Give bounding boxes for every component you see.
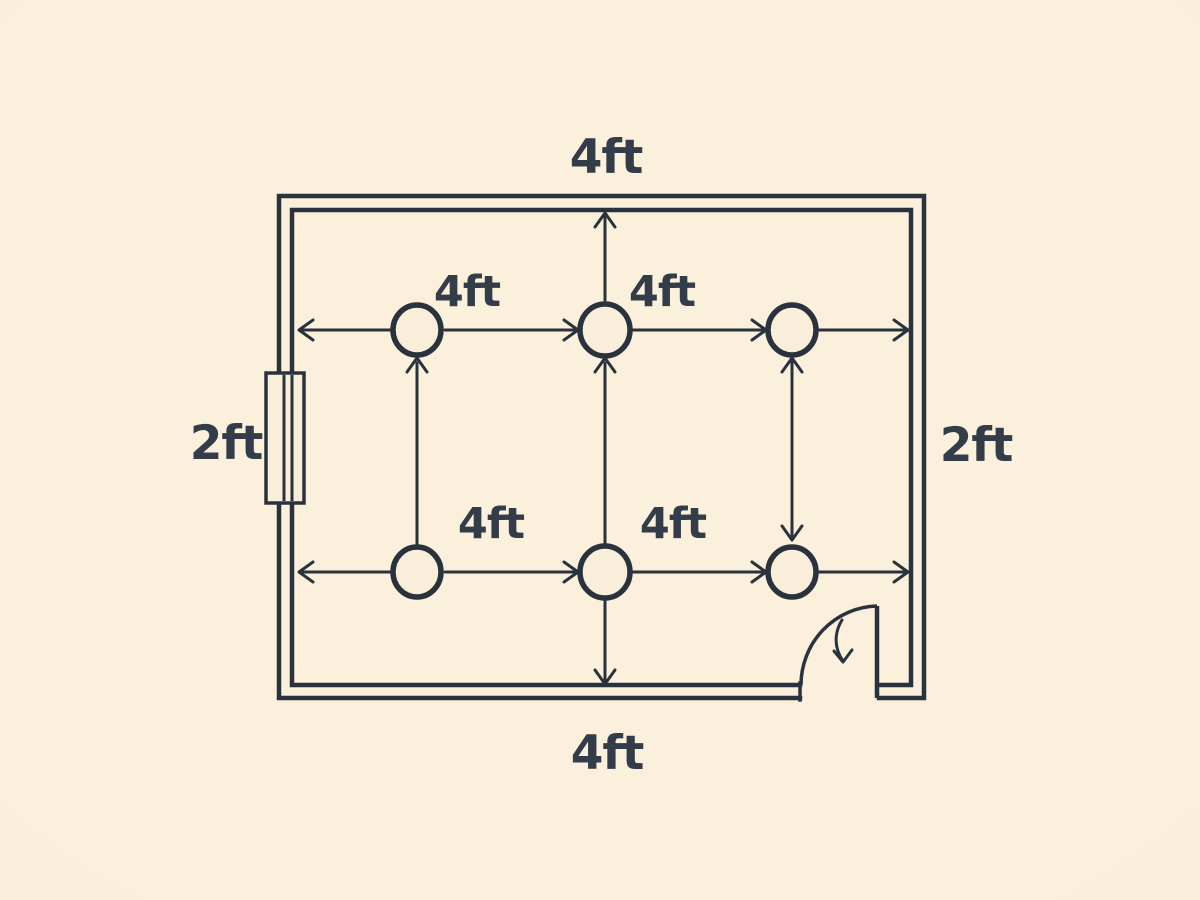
arrow-row2-fixture4-to-fixture5: [445, 562, 578, 582]
arrow-col1-between-rows: [407, 358, 427, 546]
fixture-circle: [768, 547, 816, 597]
floor-plan-diagram: 4ft 4ft 2ft 2ft 4ft 4ft 4ft 4ft: [0, 0, 1200, 900]
spacing-label-row1-gap2: 4ft: [629, 267, 696, 317]
dimension-label-right: 2ft: [940, 418, 1013, 473]
dimension-label-top: 4ft: [570, 130, 643, 185]
window-symbol: [266, 373, 304, 503]
spacing-label-row2-gap1: 4ft: [458, 499, 525, 549]
room-wall-outer: [279, 196, 924, 698]
arrow-col2-fixture5-to-bottom-wall: [595, 600, 615, 684]
fixture-circle: [393, 547, 441, 597]
dimension-label-left: 2ft: [190, 416, 263, 471]
spacing-label-row2-gap2: 4ft: [640, 499, 707, 549]
arrow-row1-fixture1-to-fixture2: [445, 320, 578, 340]
door-swing-direction-arrow-icon: [834, 620, 852, 662]
arrow-row1-fixture3-to-wall: [819, 320, 908, 340]
arrow-row1-fixture2-to-fixture3: [633, 320, 766, 340]
room-wall-inner: [292, 210, 911, 685]
spacing-arrows: [299, 213, 908, 684]
arrow-row2-fixture6-to-wall: [819, 562, 908, 582]
door-symbol: [801, 606, 877, 698]
arrow-row2-wall-to-fixture4: [299, 562, 391, 582]
arrow-col2-fixture2-to-top-wall: [595, 213, 615, 300]
arrow-row1-wall-to-fixture1: [299, 320, 391, 340]
door-swing-arc: [801, 606, 877, 685]
arrow-col2-between-rows: [595, 358, 615, 546]
dimension-label-bottom: 4ft: [571, 726, 644, 781]
arrow-col3-between-rows: [782, 358, 802, 540]
spacing-label-row1-gap1: 4ft: [434, 267, 501, 317]
fixture-circle: [580, 546, 630, 598]
arrow-row2-fixture5-to-fixture6: [633, 562, 766, 582]
fixture-circle: [580, 304, 630, 356]
diagram-canvas: 4ft 4ft 2ft 2ft 4ft 4ft 4ft 4ft: [0, 0, 1200, 900]
fixture-circle: [768, 305, 816, 355]
